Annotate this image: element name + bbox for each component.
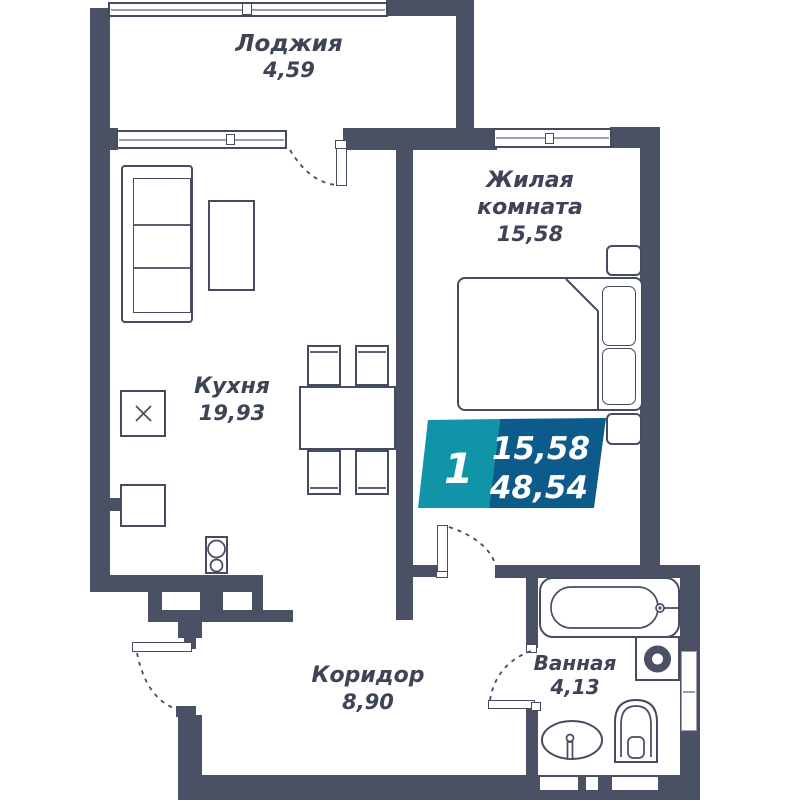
wall: [396, 565, 438, 577]
chair: [355, 345, 389, 386]
pillow: [602, 348, 636, 405]
door-hinge: [531, 702, 541, 711]
chair: [307, 345, 341, 386]
badge-room-count-panel: [418, 419, 500, 508]
room-name: Лоджия: [189, 30, 389, 58]
room-area: 4,13: [495, 675, 655, 699]
balcony-door-swing-arc: [290, 150, 337, 185]
pillow: [602, 286, 636, 346]
window: [116, 130, 287, 149]
nightstand: [606, 245, 642, 276]
wall-niche: [540, 777, 578, 790]
badge-total-area: 48,54: [489, 470, 588, 506]
room-area: 15,58: [455, 222, 605, 248]
sink-cabinet: [120, 484, 166, 527]
bathroom-door-leaf: [488, 700, 535, 709]
room-name: Ванная: [495, 651, 655, 675]
living-room-door-leaf: [437, 525, 448, 572]
toilet: [615, 700, 657, 762]
chair: [355, 450, 389, 495]
wall: [396, 148, 413, 620]
bathroom-sink: [542, 721, 602, 759]
wall: [640, 148, 660, 577]
wall: [200, 592, 223, 610]
wall: [456, 14, 474, 130]
toilet-rim: [621, 706, 651, 757]
badge-areas-panel: [489, 418, 606, 508]
room-area: 19,93: [152, 401, 312, 427]
wall: [343, 128, 497, 150]
wall: [148, 610, 293, 622]
room-label-kitchen: Кухня 19,93: [152, 374, 312, 426]
sofa-seat: [133, 178, 191, 313]
room-label-living: Жилая комната 15,58: [455, 168, 605, 247]
room-label-bathroom: Ванная 4,13: [495, 651, 655, 700]
toilet-bowl: [628, 737, 644, 758]
living-room-door-swing-arc: [449, 527, 496, 566]
badge-room-count: 1: [444, 444, 473, 493]
sink-faucet: [568, 742, 573, 759]
stove: [205, 536, 228, 574]
wall: [178, 622, 202, 638]
wall: [90, 575, 263, 592]
wall: [178, 715, 202, 800]
window-mullion: [226, 134, 235, 145]
balcony-door-leaf: [336, 148, 347, 186]
window-mullion: [545, 133, 554, 144]
entrance-door-leaf: [132, 642, 192, 652]
badge-living-area: 15,58: [492, 431, 590, 467]
wall: [148, 592, 162, 610]
chair: [307, 450, 341, 495]
dining-table: [299, 386, 396, 450]
unit-info-badge: 1 15,58 48,54: [418, 418, 606, 508]
room-name: Жилая комната: [455, 168, 605, 222]
wall-niche: [586, 777, 598, 790]
sink-faucet: [567, 735, 574, 742]
window-mullion: [242, 3, 252, 15]
bathtub: [539, 577, 680, 638]
wall: [252, 592, 263, 610]
entrance-door-swing-arc: [137, 653, 183, 711]
room-label-corridor: Коридор 8,90: [288, 663, 448, 715]
coffee-table: [208, 200, 255, 291]
wall: [90, 128, 118, 150]
room-name: Кухня: [152, 374, 312, 401]
wall: [610, 127, 660, 148]
room-area: 8,90: [288, 690, 448, 716]
nightstand: [606, 413, 642, 445]
wall-niche: [612, 777, 658, 790]
wall: [90, 8, 110, 592]
vent-shaft: [681, 651, 697, 731]
room-label-loggia: Лоджия 4,59: [189, 30, 389, 84]
floor-plan: 1 15,58 48,54 Лоджия 4,59 Жилая комната …: [0, 0, 800, 800]
room-name: Коридор: [288, 663, 448, 690]
wall: [526, 578, 538, 648]
room-area: 4,59: [189, 58, 389, 84]
